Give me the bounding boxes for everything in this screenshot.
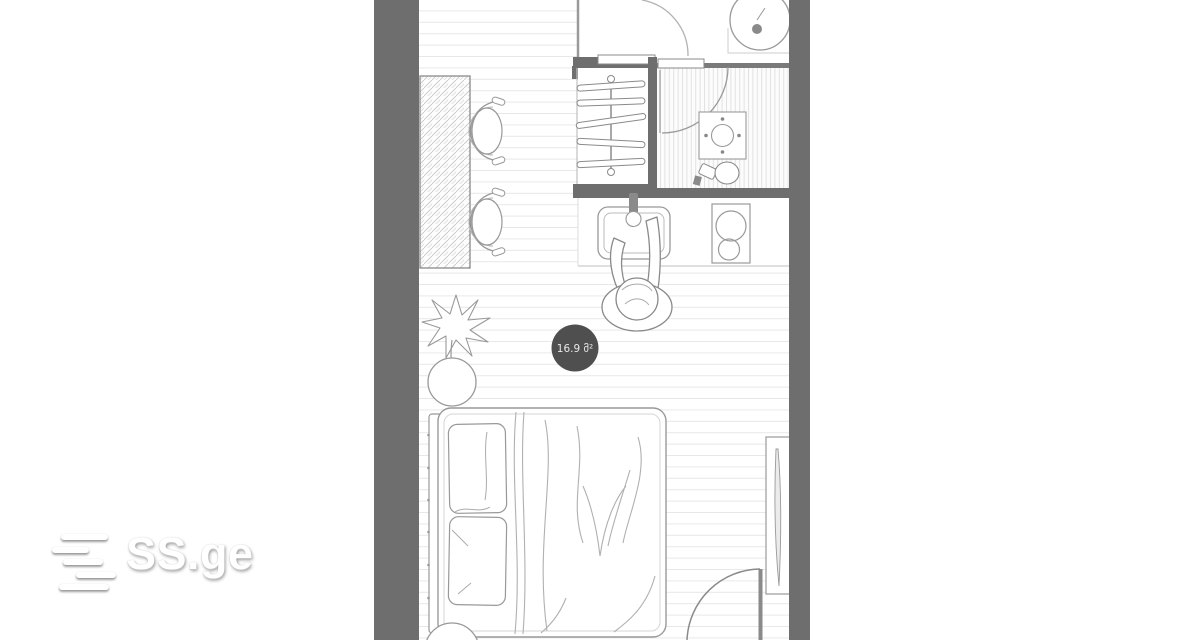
logo-text: SS.ge [126, 528, 254, 580]
plant-pot [428, 358, 476, 406]
dining-table [420, 76, 470, 268]
double-bed [427, 408, 666, 637]
sliding-door [658, 59, 704, 68]
floorplan-screenshot: 16.9 მ² [0, 0, 1200, 640]
pillow [448, 424, 507, 514]
kitchen [573, 188, 789, 266]
stacked-bars-icon [52, 534, 118, 590]
washbasin-drain [752, 24, 762, 34]
wall-segment [648, 57, 657, 196]
wardrobe [572, 55, 657, 196]
left-wall [374, 0, 419, 640]
sliding-door [598, 55, 655, 64]
wall-segment [573, 188, 789, 198]
ssge-watermark: SS.ge [52, 534, 254, 590]
radiator-icon [766, 437, 791, 594]
area-badge-label: 16.9 მ² [557, 343, 593, 355]
stove-icon [712, 204, 750, 263]
right-wall [789, 0, 810, 640]
pillow [448, 517, 507, 606]
area-badge: 16.9 მ² [552, 325, 599, 372]
shower-room [657, 59, 789, 188]
shower-drain-icon [699, 112, 746, 159]
